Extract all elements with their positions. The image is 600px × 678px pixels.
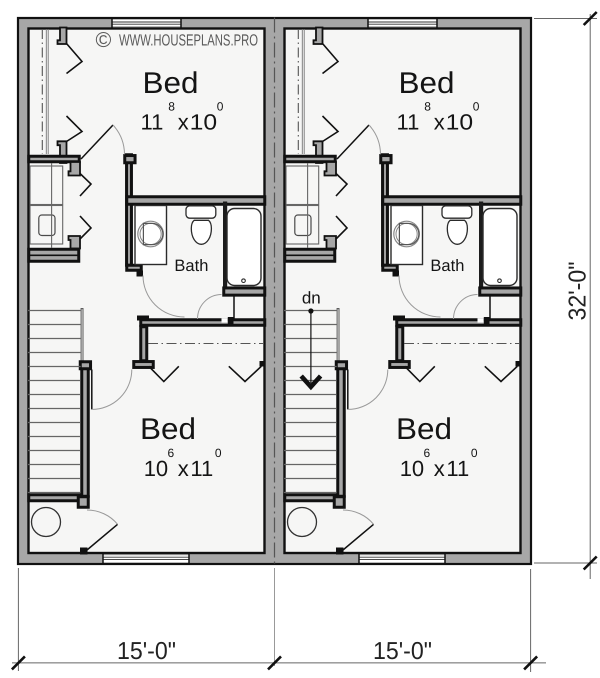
svg-text:©: ©: [96, 28, 112, 52]
svg-text:6: 6: [168, 446, 175, 460]
svg-text:dn: dn: [302, 289, 321, 308]
svg-text:10: 10: [144, 456, 168, 481]
svg-text:x: x: [434, 456, 445, 481]
svg-text:Bed: Bed: [399, 67, 455, 100]
svg-text:x: x: [434, 109, 445, 134]
svg-text:8: 8: [424, 99, 431, 113]
svg-text:0: 0: [473, 99, 480, 113]
svg-text:0: 0: [471, 446, 478, 460]
svg-text:6: 6: [424, 446, 431, 460]
svg-text:11: 11: [190, 456, 213, 481]
svg-text:Bed: Bed: [143, 67, 199, 100]
svg-text:15'-0": 15'-0": [117, 638, 176, 665]
svg-text:Bath: Bath: [174, 257, 208, 275]
svg-text:11: 11: [446, 456, 469, 481]
svg-text:11: 11: [141, 109, 164, 134]
svg-text:8: 8: [168, 99, 175, 113]
svg-text:x: x: [178, 109, 189, 134]
svg-text:Bed: Bed: [140, 413, 196, 446]
svg-text:10: 10: [400, 456, 424, 481]
svg-text:10: 10: [446, 109, 474, 134]
svg-text:11: 11: [397, 109, 420, 134]
svg-text:32'-0": 32'-0": [565, 262, 592, 321]
svg-text:x: x: [178, 456, 189, 481]
svg-text:WWW.HOUSEPLANS.PRO: WWW.HOUSEPLANS.PRO: [119, 32, 258, 50]
svg-text:Bath: Bath: [430, 257, 464, 275]
svg-text:0: 0: [217, 99, 224, 113]
svg-text:10: 10: [190, 109, 218, 134]
svg-text:Bed: Bed: [396, 413, 452, 446]
svg-text:0: 0: [215, 446, 222, 460]
svg-text:15'-0": 15'-0": [373, 638, 432, 665]
